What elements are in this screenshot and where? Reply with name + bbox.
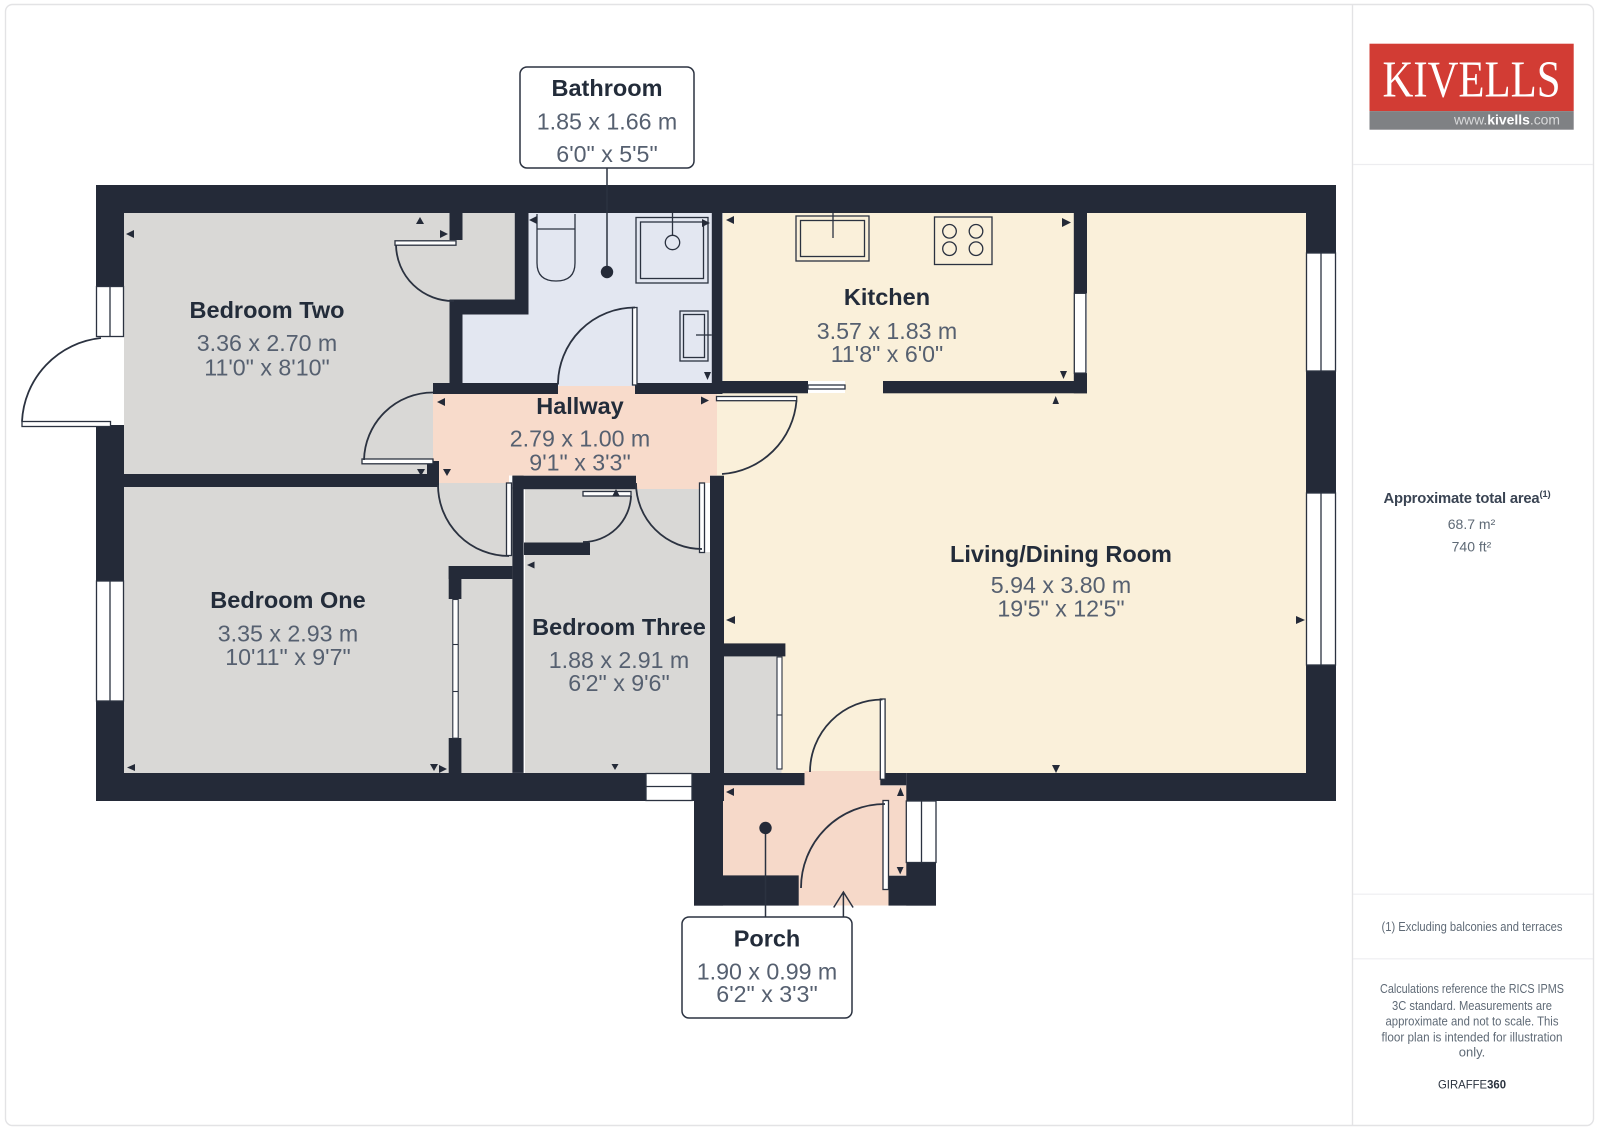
svg-text:68.7 m²: 68.7 m² [1448, 516, 1496, 532]
svg-text:3.35 x 2.93 m: 3.35 x 2.93 m [218, 621, 359, 647]
svg-text:6'2" x 9'6": 6'2" x 9'6" [568, 670, 669, 696]
svg-text:5.94 x 3.80 m: 5.94 x 3.80 m [991, 572, 1132, 598]
svg-text:6'0" x 5'5": 6'0" x 5'5" [556, 141, 657, 167]
svg-text:Bathroom: Bathroom [552, 75, 663, 101]
svg-text:2.79 x 1.00 m: 2.79 x 1.00 m [510, 426, 651, 452]
svg-text:GIRAFFE360: GIRAFFE360 [1438, 1078, 1506, 1092]
svg-text:KIVELLS: KIVELLS [1383, 52, 1561, 109]
svg-text:Bedroom Two: Bedroom Two [190, 297, 345, 323]
svg-text:(1) Excluding balconies and te: (1) Excluding balconies and terraces [1382, 919, 1563, 934]
svg-text:9'1" x 3'3": 9'1" x 3'3" [529, 450, 630, 476]
svg-text:10'11" x 9'7": 10'11" x 9'7" [225, 644, 350, 670]
svg-text:floor plan is intended for ill: floor plan is intended for illustration [1382, 1029, 1563, 1044]
svg-text:Porch: Porch [734, 926, 801, 952]
svg-text:Living/Dining Room: Living/Dining Room [950, 541, 1172, 567]
svg-text:11'0" x 8'10": 11'0" x 8'10" [204, 355, 329, 381]
svg-text:Bedroom One: Bedroom One [210, 587, 365, 613]
svg-text:19'5" x 12'5": 19'5" x 12'5" [997, 596, 1124, 622]
svg-text:Hallway: Hallway [536, 393, 624, 419]
svg-text:6'2" x 3'3": 6'2" x 3'3" [716, 981, 817, 1007]
svg-text:11'8" x 6'0": 11'8" x 6'0" [831, 341, 944, 367]
svg-text:Calculations reference the RIC: Calculations reference the RICS IPMS [1380, 981, 1564, 996]
svg-text:3.36 x 2.70 m: 3.36 x 2.70 m [197, 330, 338, 356]
svg-text:Approximate total area(1): Approximate total area(1) [1384, 489, 1551, 507]
svg-text:3C standard. Measurements are: 3C standard. Measurements are [1392, 998, 1552, 1013]
svg-text:Bedroom Three: Bedroom Three [532, 614, 706, 640]
svg-text:740 ft²: 740 ft² [1452, 539, 1492, 555]
svg-text:1.85 x 1.66 m: 1.85 x 1.66 m [537, 109, 678, 135]
svg-text:approximate and not to scale.: approximate and not to scale. This [1386, 1014, 1559, 1029]
svg-text:only.: only. [1459, 1044, 1486, 1059]
svg-text:Kitchen: Kitchen [844, 284, 930, 310]
svg-text:www.kivells.com: www.kivells.com [1453, 112, 1560, 128]
